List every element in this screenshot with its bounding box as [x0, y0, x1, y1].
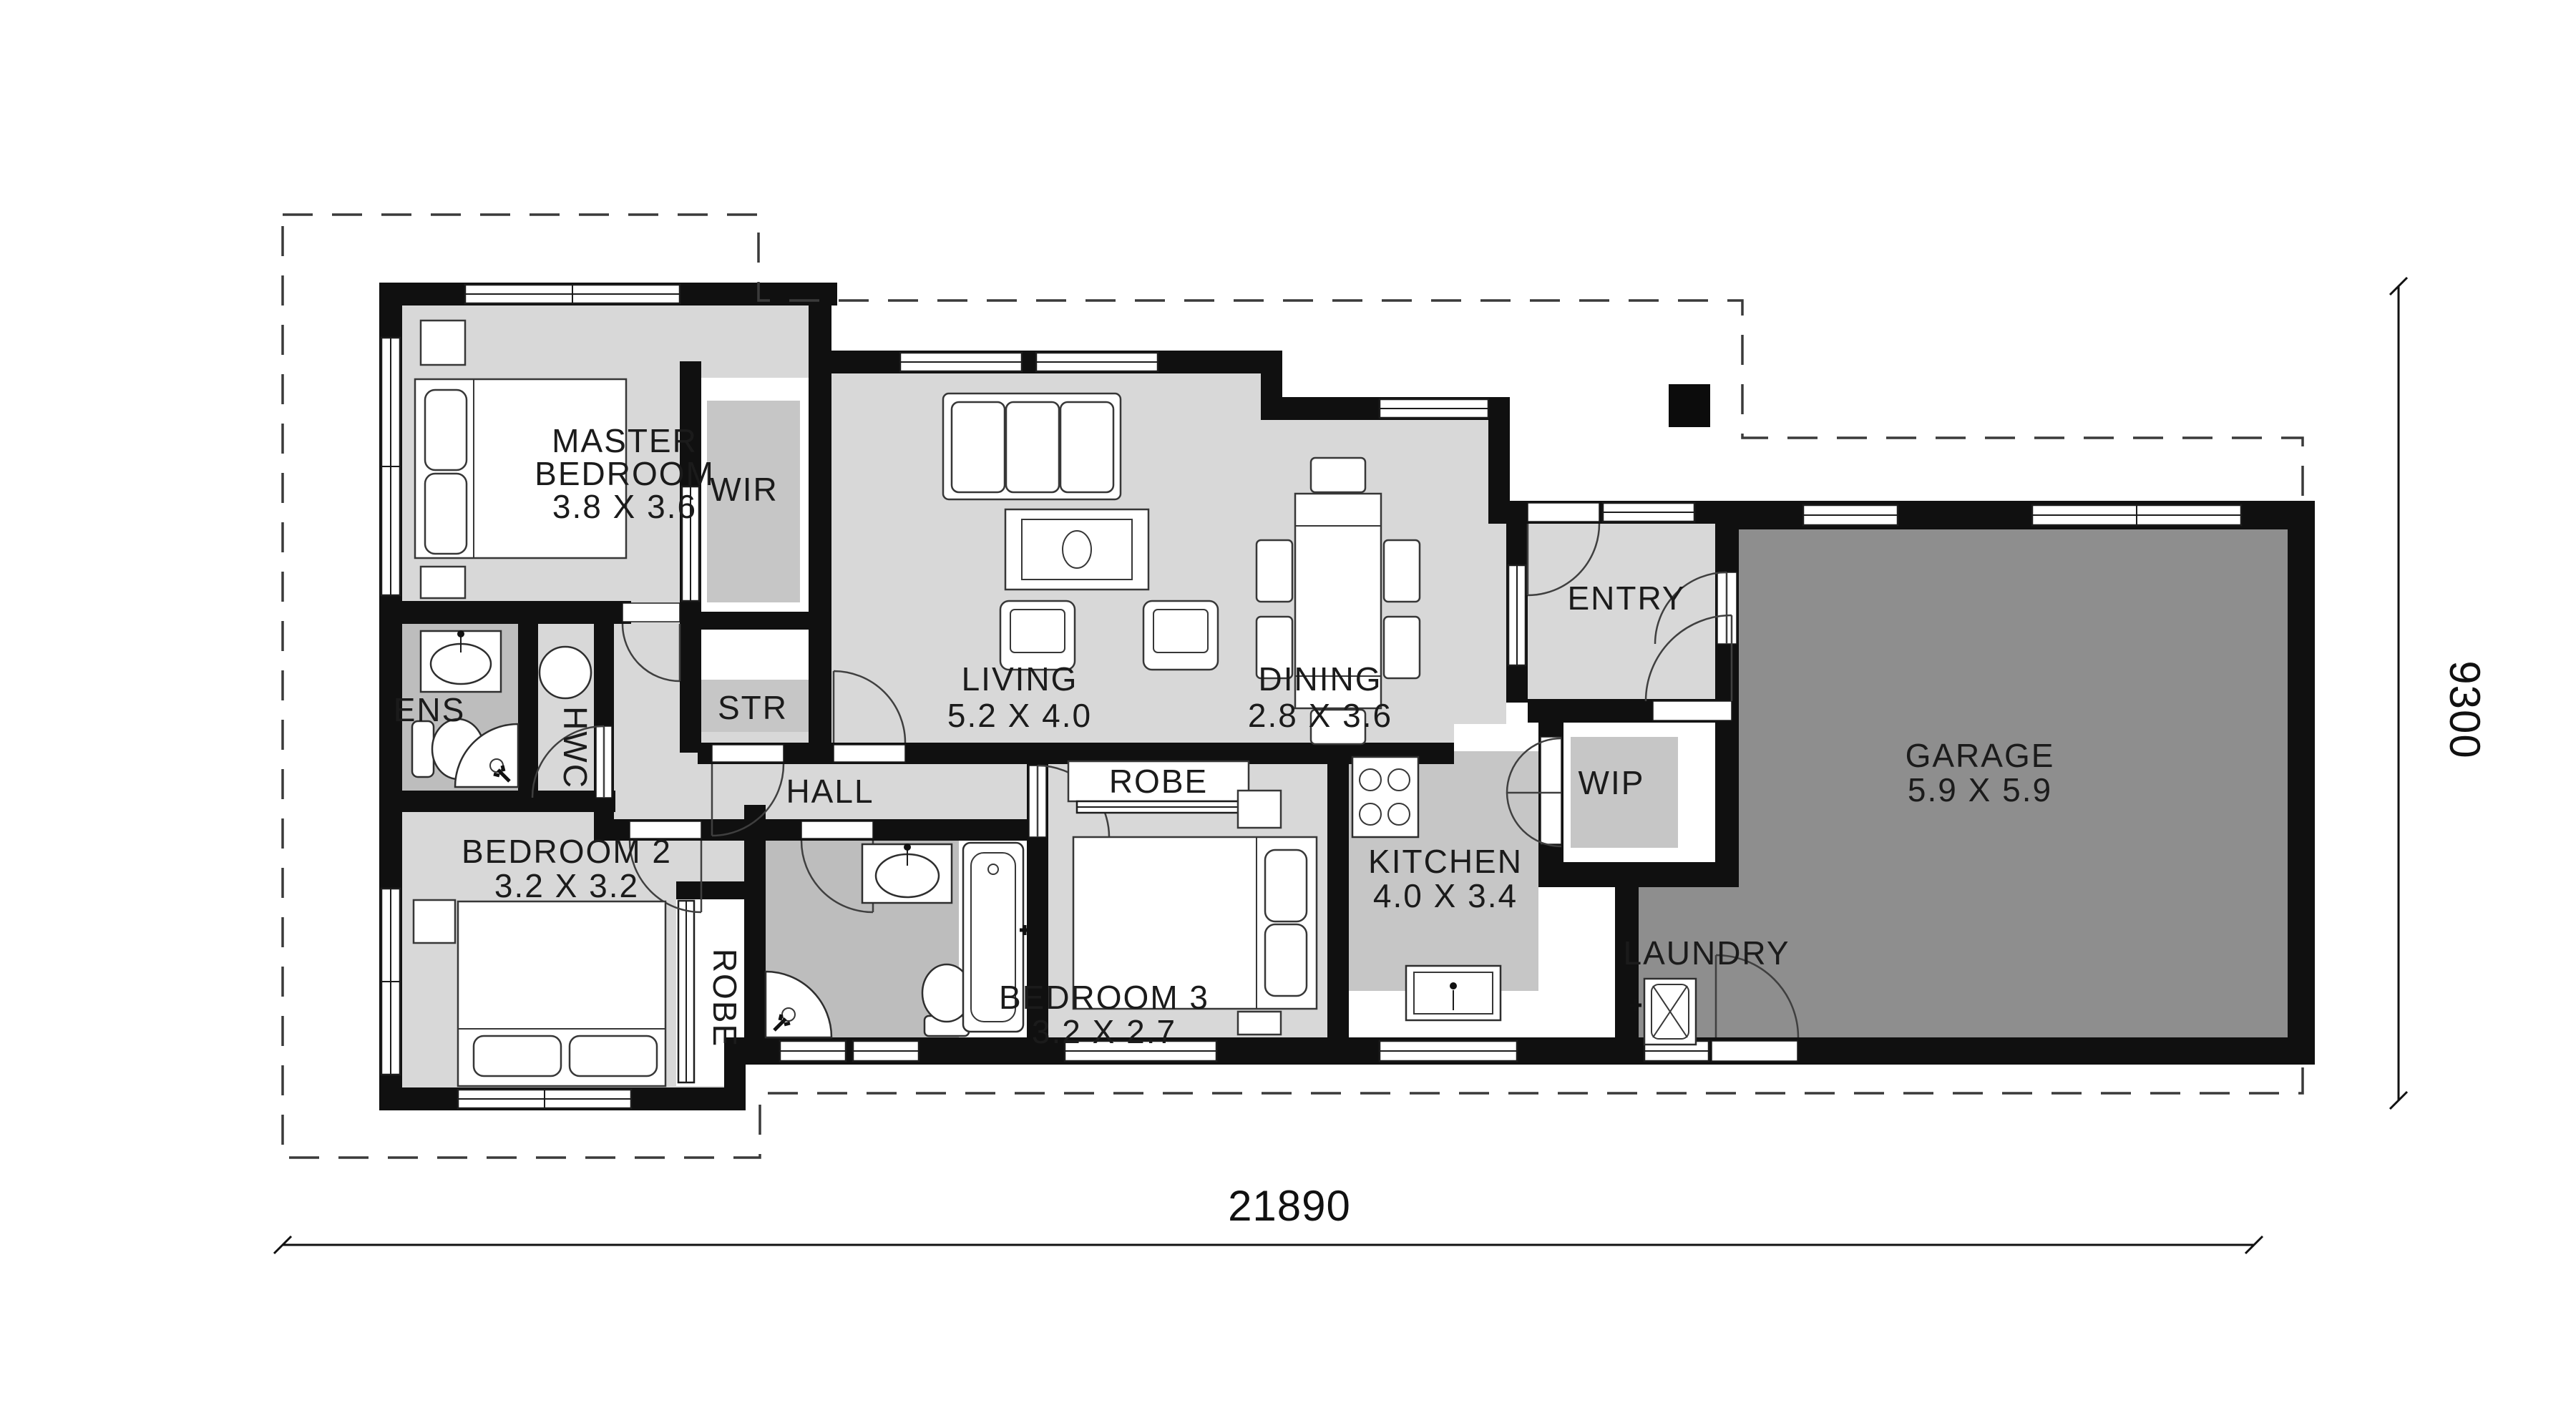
master-nightstand-1: [421, 321, 465, 365]
label-bedroom3: BEDROOM 3: [999, 979, 1209, 1016]
kitchen-entry-gap: [1454, 724, 1528, 753]
label-laundry: LAUNDRY: [1624, 934, 1790, 972]
label-str: STR: [718, 689, 788, 726]
label-living: LIVING: [962, 660, 1078, 698]
window-entry: [1603, 503, 1694, 522]
window-garage-2: [2032, 505, 2241, 525]
porch-post: [1669, 384, 1710, 427]
label-entry: ENTRY: [1567, 580, 1685, 617]
dim-width-label: 21890: [1228, 1182, 1351, 1230]
label-garage-size: 5.9 X 5.9: [1908, 771, 2052, 808]
window-dining: [1380, 399, 1488, 418]
window-bathroom-2: [853, 1041, 919, 1061]
opening-hall-living-door: [834, 745, 905, 762]
label-master-2: BEDROOM: [535, 455, 715, 492]
label-bedroom2-size: 3.2 X 3.2: [494, 867, 639, 904]
window-master-top: [465, 285, 680, 303]
slider-robe2: [678, 901, 694, 1082]
label-ens: ENS: [394, 691, 466, 728]
label-robe-bedroom2: ROBE: [706, 949, 743, 1047]
opening-front-door: [1528, 503, 1599, 522]
label-hwc: HWC: [557, 706, 594, 789]
kitchen-sink: [1406, 966, 1501, 1020]
hwc-cylinder: [540, 647, 591, 698]
window-bed2-left: [381, 889, 400, 1075]
window-kitchen-bottom: [1380, 1041, 1517, 1061]
label-living-size: 5.2 X 4.0: [947, 697, 1092, 734]
label-garage: GARAGE: [1906, 737, 2055, 774]
label-master-1: MASTER: [552, 422, 698, 459]
label-dining-size: 2.8 X 3.6: [1248, 697, 1392, 734]
label-kitchen: KITCHEN: [1368, 843, 1523, 880]
opening-bathroom-door: [801, 821, 873, 839]
label-wir: WIR: [710, 471, 778, 508]
coffee-table: [1005, 509, 1148, 590]
window-garage-1: [1803, 505, 1898, 525]
master-nightstand-2: [421, 567, 465, 598]
label-master-size: 3.8 X 3.6: [552, 488, 697, 525]
label-hall: HALL: [786, 773, 874, 810]
bed2: [458, 901, 665, 1086]
opening-master-door: [623, 603, 680, 622]
bed3-nightstand-2: [1238, 1012, 1281, 1035]
window-master-left: [381, 338, 400, 595]
label-kitchen-size: 4.0 X 3.4: [1373, 877, 1518, 914]
label-wip: WIP: [1579, 764, 1645, 801]
opening-entry-kitchen-door: [1653, 701, 1732, 720]
window-living-1: [900, 353, 1022, 371]
bed2-nightstand: [414, 900, 455, 943]
sofa: [943, 393, 1121, 499]
cooktop: [1352, 757, 1418, 837]
label-bedroom2: BEDROOM 2: [462, 833, 672, 870]
bathroom-vanity: [862, 844, 952, 903]
window-bathroom-1: [780, 1041, 846, 1061]
opening-str-door: [712, 745, 784, 762]
window-bed2-bottom: [458, 1090, 631, 1108]
ens-vanity: [421, 630, 501, 692]
bed3-nightstand-1: [1238, 791, 1281, 828]
label-robe-bedroom3: ROBE: [1109, 763, 1208, 800]
opening-wip-bifold: [1541, 737, 1561, 844]
dim-height-label: 9300: [2441, 660, 2489, 758]
floor-plan-canvas: 21890 9300 MASTER BEDROOM 3.8 X 3.6 WIR …: [0, 0, 2576, 1408]
window-living-2: [1036, 353, 1158, 371]
opening-laundry-door: [1712, 1041, 1797, 1061]
label-dining: DINING: [1259, 660, 1382, 698]
outside-notch-bottom: [744, 1064, 1617, 1132]
label-bedroom3-size: 3.2 X 2.7: [1032, 1013, 1176, 1050]
window-entry-sidelight: [1508, 565, 1526, 665]
